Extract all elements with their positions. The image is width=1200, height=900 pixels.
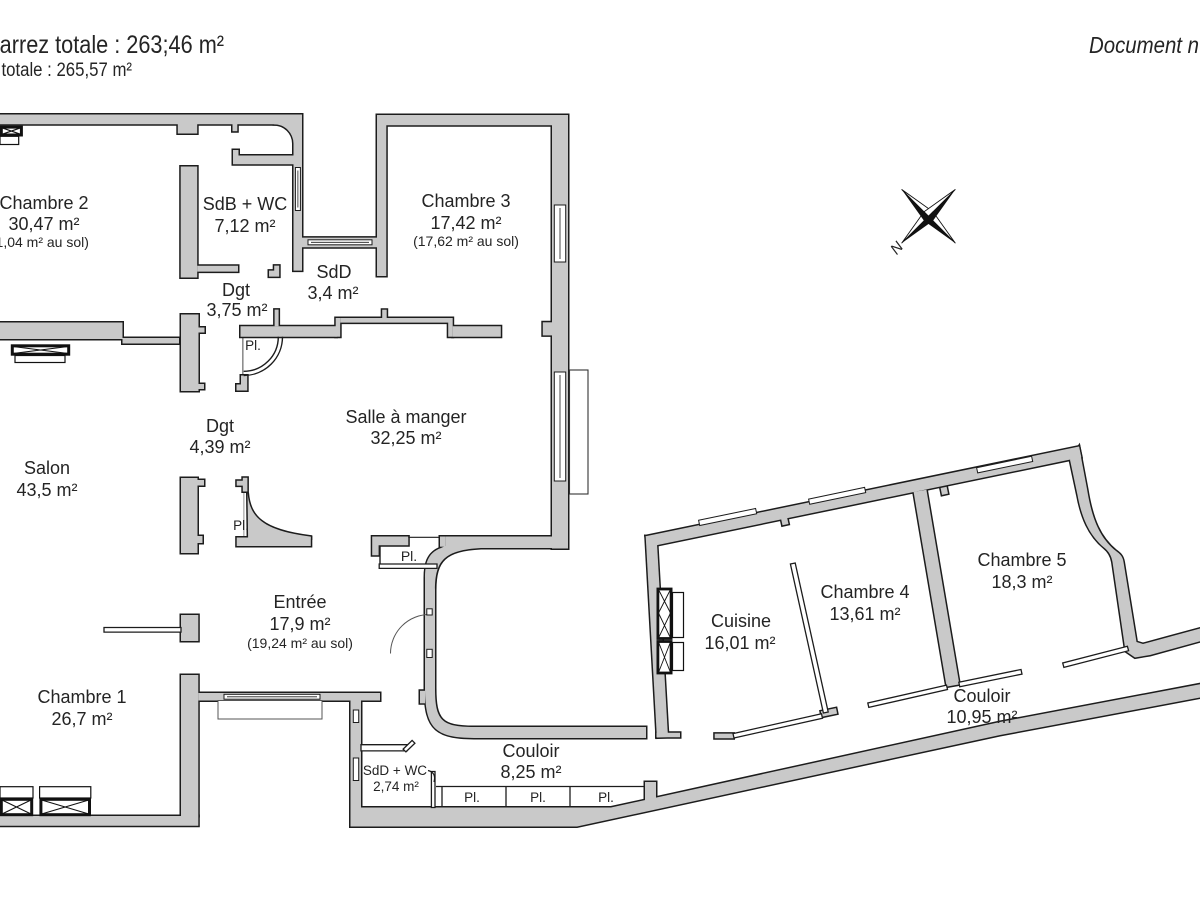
svg-text:4,39 m²: 4,39 m² (189, 437, 250, 457)
svg-text:Pl.: Pl. (530, 790, 546, 805)
svg-text:43,5 m²: 43,5 m² (16, 480, 77, 500)
svg-text:17,9 m²: 17,9 m² (269, 614, 330, 634)
svg-text:Entrée: Entrée (273, 592, 326, 612)
svg-text:Surface totale : 265,57 m²: Surface totale : 265,57 m² (0, 60, 132, 81)
svg-text:16,01 m²: 16,01 m² (704, 633, 775, 653)
svg-text:Salon: Salon (24, 458, 70, 478)
svg-text:13,61 m²: 13,61 m² (829, 604, 900, 624)
svg-text:Pl.: Pl. (598, 790, 614, 805)
svg-text:Chambre 1: Chambre 1 (37, 687, 126, 707)
svg-text:Pl.: Pl. (464, 790, 480, 805)
svg-text:7,12 m²: 7,12 m² (214, 216, 275, 236)
svg-text:26,7 m²: 26,7 m² (51, 709, 112, 729)
svg-text:Couloir: Couloir (953, 686, 1010, 706)
svg-text:17,42 m²: 17,42 m² (430, 213, 501, 233)
svg-text:Salle à manger: Salle à manger (345, 407, 466, 427)
svg-text:Dgt: Dgt (206, 416, 234, 436)
svg-text:Document n: Document n (1089, 32, 1199, 58)
svg-text:Pl.: Pl. (401, 548, 417, 564)
svg-text:Chambre 2: Chambre 2 (0, 193, 89, 213)
svg-text:Chambre 4: Chambre 4 (820, 582, 909, 602)
svg-text:3,75 m²: 3,75 m² (206, 300, 267, 320)
svg-text:18,3 m²: 18,3 m² (991, 572, 1052, 592)
svg-text:(19,24 m² au sol): (19,24 m² au sol) (247, 635, 353, 651)
svg-text:32,25 m²: 32,25 m² (370, 428, 441, 448)
svg-text:(31,04 m² au sol): (31,04 m² au sol) (0, 234, 89, 250)
svg-text:30,47 m²: 30,47 m² (8, 214, 79, 234)
svg-text:8,25 m²: 8,25 m² (500, 762, 561, 782)
svg-text:SdD: SdD (316, 262, 351, 282)
svg-text:Chambre 3: Chambre 3 (421, 191, 510, 211)
svg-text:Pl.: Pl. (233, 518, 249, 533)
svg-text:10,95 m²: 10,95 m² (946, 707, 1017, 727)
svg-text:Carrez totale : 263;46 m²: Carrez totale : 263;46 m² (0, 31, 224, 59)
svg-text:SdD + WC: SdD + WC (363, 763, 427, 778)
svg-text:3,4 m²: 3,4 m² (307, 283, 358, 303)
svg-text:Dgt: Dgt (222, 280, 250, 300)
svg-text:Couloir: Couloir (502, 741, 559, 761)
svg-text:Cuisine: Cuisine (711, 611, 771, 631)
svg-text:Chambre 5: Chambre 5 (977, 550, 1066, 570)
svg-text:2,74 m²: 2,74 m² (373, 779, 419, 794)
svg-text:SdB + WC: SdB + WC (203, 194, 288, 214)
svg-text:Pl.: Pl. (245, 338, 261, 353)
svg-text:(17,62 m² au sol): (17,62 m² au sol) (413, 233, 519, 249)
